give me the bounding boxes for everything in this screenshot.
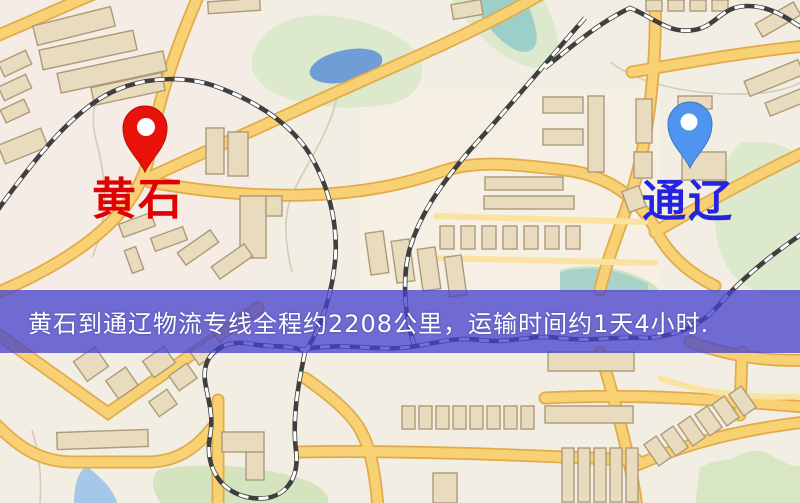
- origin-pin-icon[interactable]: [117, 98, 173, 176]
- map-canvas[interactable]: [0, 0, 800, 503]
- map-screenshot: 黄石 通辽 黄石到通辽物流专线全程约2208公里，运输时间约1天4小时.: [0, 0, 800, 503]
- route-info-banner: 黄石到通辽物流专线全程约2208公里，运输时间约1天4小时.: [0, 290, 800, 353]
- destination-city-label: 通辽: [642, 180, 734, 224]
- destination-pin-icon[interactable]: [662, 94, 718, 172]
- route-info-text: 黄石到通辽物流专线全程约2208公里，运输时间约1天4小时.: [28, 304, 709, 339]
- origin-city-label: 黄石: [92, 178, 184, 222]
